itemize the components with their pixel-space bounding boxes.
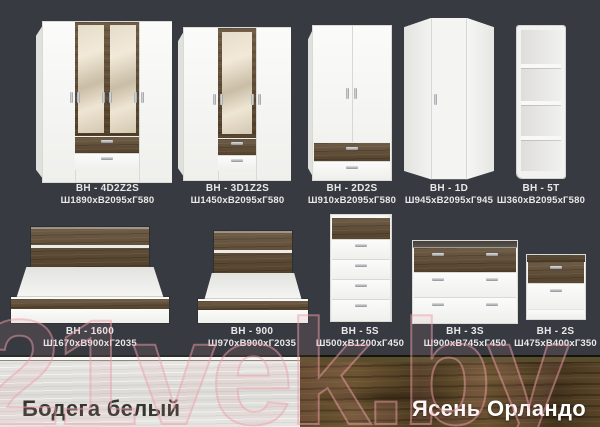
product-card-bh-5t: BH - 5T Ш360хВ2095хГ580 (486, 12, 596, 210)
shelf-board (521, 136, 561, 140)
footboard-wood-strip (198, 301, 308, 310)
drawer-handle (486, 278, 498, 281)
mirror (222, 32, 252, 134)
finish-name-light: Бодега белый (22, 396, 180, 422)
product-dims: Ш360хВ2095хГ580 (486, 195, 596, 207)
headboard-slat-gap (214, 250, 292, 253)
bed-platform (16, 267, 164, 299)
wardrobe-drawer-white (314, 161, 390, 179)
product-dims: Ш500хВ1200хГ450 (302, 338, 418, 350)
product-dims: Ш475хВ400хГ350 (498, 338, 600, 350)
mirror (78, 25, 104, 133)
wardrobe-2door-illustration (313, 26, 391, 180)
finish-swatch-bodega-white: Бодега белый (0, 355, 300, 427)
product-card-bh-1600: BH - 1600 Ш1670хВ900хГ2035 (10, 213, 170, 353)
chest-drawer-white (332, 239, 390, 260)
wardrobe-3door-illustration (184, 28, 290, 180)
drawer-handle (355, 244, 367, 247)
nightstand-base (528, 309, 584, 319)
bed-headboard (214, 231, 292, 273)
drawer-handle (486, 303, 498, 306)
product-dims: Ш1670хВ900хГ2035 (10, 338, 170, 350)
wardrobe-drawer-wood (75, 136, 139, 154)
drawer-handle (101, 140, 113, 143)
door-seam (352, 26, 353, 142)
corner-wardrobe-illustration (404, 18, 494, 186)
door-seam (466, 18, 467, 186)
drawer-handle (355, 304, 367, 307)
door-handle (70, 92, 73, 103)
drawer-handle (432, 278, 444, 281)
product-code: BH - 5S (302, 326, 418, 339)
headboard-slat-gap (31, 245, 149, 248)
door-handle (213, 94, 216, 105)
chest-drawer-white (332, 279, 390, 300)
finish-swatch-yasen-orlando: Ясень Орландо (300, 355, 600, 427)
shelf-board (521, 101, 561, 105)
drawer-handle (231, 159, 243, 162)
chest-5drawer-illustration (331, 215, 391, 321)
door-handle (102, 92, 105, 103)
wardrobe-side-panel (36, 25, 43, 179)
corner-wardrobe-body (404, 18, 494, 186)
bed-footboard (11, 297, 169, 323)
product-code: BH - 1600 (10, 326, 170, 339)
corner-left-face (404, 18, 431, 186)
drawer-handle (101, 157, 113, 160)
chest-drawer-white (332, 299, 390, 321)
wardrobe-door-white-right (256, 28, 291, 180)
mirror (110, 25, 136, 133)
bed-platform (204, 273, 302, 301)
drawer-handle (486, 253, 498, 256)
door-seam (431, 18, 432, 186)
door-handle (134, 92, 137, 103)
finish-name-dark: Ясень Орландо (412, 396, 586, 422)
drawer-handle (550, 266, 562, 269)
product-label: BH - 5T Ш360хВ2095хГ580 (486, 183, 596, 207)
drawer-handle (550, 289, 562, 292)
wardrobe-drawer-white (75, 153, 139, 170)
product-card-bh-5s: BH - 5S Ш500хВ1200хГ450 (302, 213, 418, 353)
wardrobe-mirror-door-frame (107, 22, 139, 136)
door-handle (258, 94, 261, 105)
product-code: BH - 5T (486, 183, 596, 196)
product-label: BH - 5S Ш500хВ1200хГ450 (302, 326, 418, 350)
product-label: BH - 2S Ш475хВ400хГ350 (498, 326, 600, 350)
door-handle (141, 92, 144, 103)
drawer-handle (346, 166, 358, 169)
drawer-handle (231, 142, 243, 145)
shelf-body (517, 26, 565, 178)
product-card-bh-2s: BH - 2S Ш475хВ400хГ350 (498, 213, 600, 353)
nightstand-top-surface (527, 255, 585, 262)
bed-headboard (31, 227, 149, 267)
wardrobe-drawer-wood (314, 142, 390, 162)
door-handle (346, 88, 349, 99)
nightstand-drawer-white (528, 283, 584, 310)
drawer-handle (355, 264, 367, 267)
nightstand-drawer-wood (528, 262, 584, 283)
door-handle (77, 92, 80, 103)
door-handle (251, 94, 254, 105)
chest-drawer-wood (332, 218, 390, 239)
door-handle (434, 94, 437, 105)
product-label: BH - 1600 Ш1670хВ900хГ2035 (10, 326, 170, 350)
nightstand-illustration (527, 255, 585, 319)
chest-drawer-white (332, 259, 390, 280)
shelf-board (521, 64, 561, 68)
product-code: BH - 2S (498, 326, 600, 339)
wardrobe-drawer-white (218, 155, 256, 171)
wardrobe-drawer-wood (218, 138, 256, 156)
drawer-handle (432, 303, 444, 306)
bed-double-illustration (10, 227, 170, 323)
footboard-base (198, 310, 308, 323)
door-handle (354, 88, 357, 99)
wardrobe-mirror-door-frame (75, 22, 107, 136)
catalog-page: BH - 4D2Z2S Ш1890хВ2095хГ580 BH - (0, 0, 600, 427)
bed-footboard (198, 299, 308, 323)
shelf-unit-illustration (517, 26, 565, 178)
drawer-handle (355, 284, 367, 287)
door-handle (220, 94, 223, 105)
wardrobe-mirror-door-frame (218, 28, 256, 138)
wardrobe-4door-illustration (43, 22, 171, 182)
drawer-handle (346, 147, 358, 150)
footboard-base (11, 309, 169, 323)
footboard-wood-strip (11, 299, 169, 309)
door-handle (109, 92, 112, 103)
drawer-handle (432, 253, 444, 256)
